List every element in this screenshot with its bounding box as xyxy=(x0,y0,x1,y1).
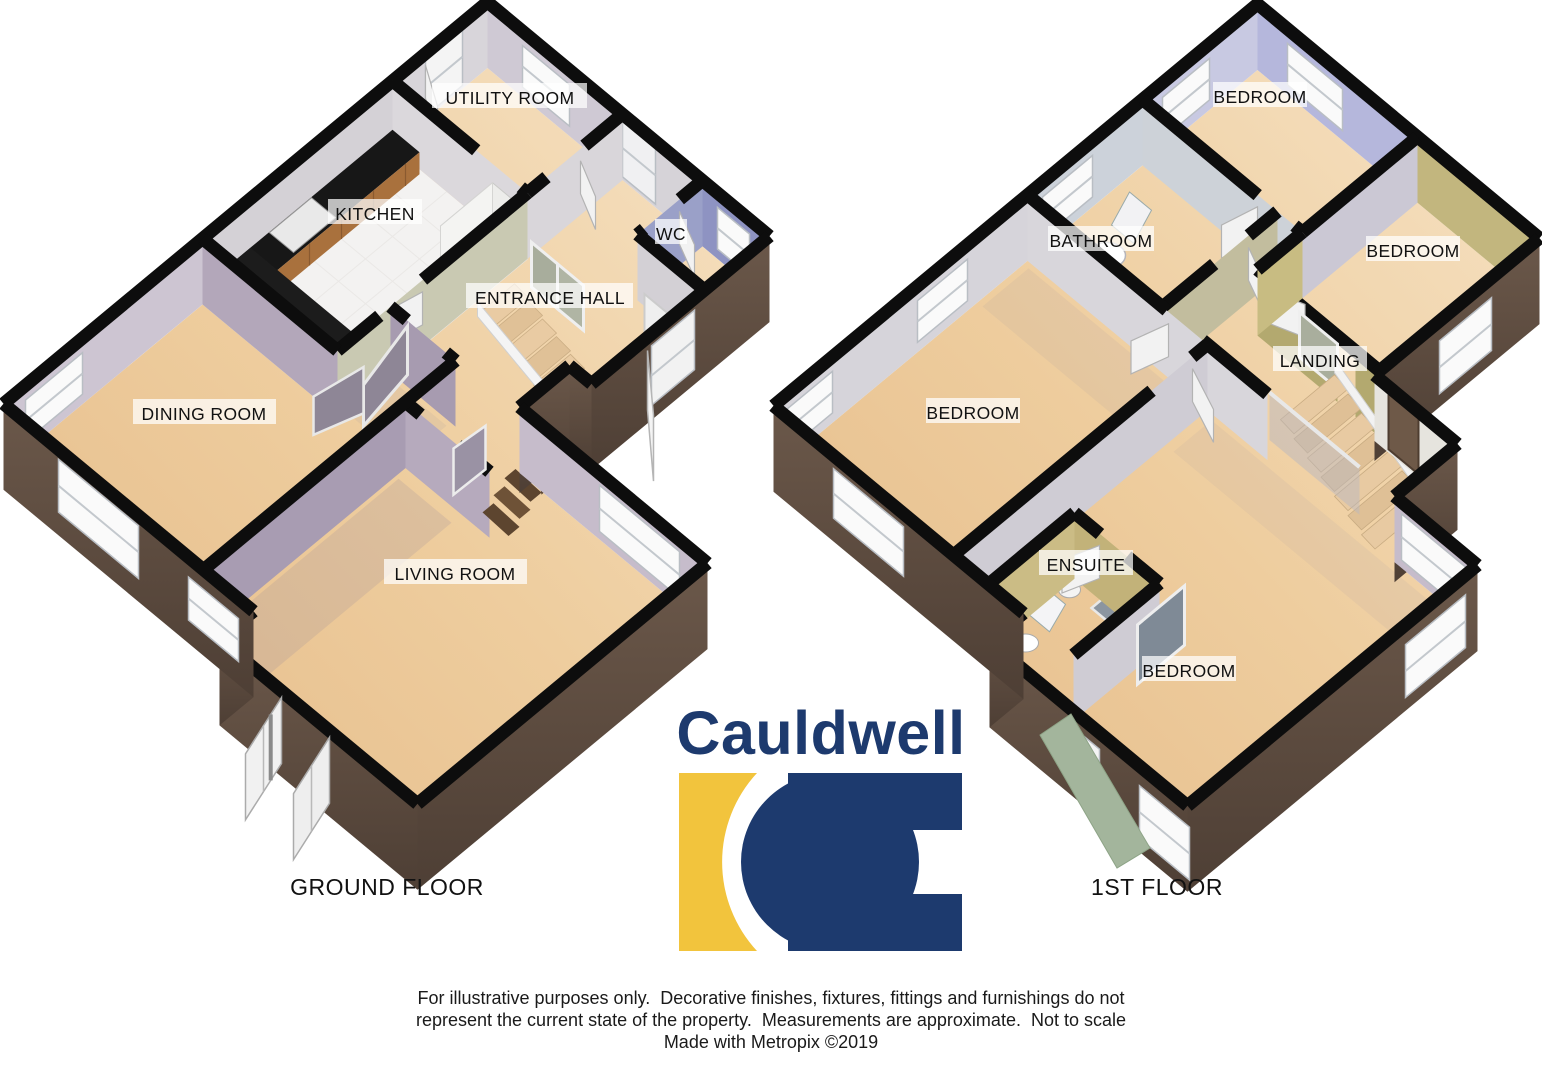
svg-text:LANDING: LANDING xyxy=(1280,351,1361,371)
svg-text:BEDROOM: BEDROOM xyxy=(1366,241,1459,261)
svg-text:Made with Metropix ©2019: Made with Metropix ©2019 xyxy=(664,1032,878,1052)
svg-text:BATHROOM: BATHROOM xyxy=(1049,231,1152,251)
svg-text:BEDROOM: BEDROOM xyxy=(1213,87,1306,107)
svg-text:LIVING ROOM: LIVING ROOM xyxy=(394,564,515,584)
svg-text:UTILITY ROOM: UTILITY ROOM xyxy=(446,88,575,108)
svg-text:KITCHEN: KITCHEN xyxy=(335,204,415,224)
svg-text:ENTRANCE HALL: ENTRANCE HALL xyxy=(475,288,625,308)
svg-text:BEDROOM: BEDROOM xyxy=(1142,661,1235,681)
svg-text:GROUND FLOOR: GROUND FLOOR xyxy=(290,874,484,900)
svg-text:Cauldwell: Cauldwell xyxy=(676,699,965,767)
svg-text:DINING ROOM: DINING ROOM xyxy=(142,404,267,424)
svg-text:BEDROOM: BEDROOM xyxy=(926,403,1019,423)
svg-text:ENSUITE: ENSUITE xyxy=(1047,555,1126,575)
svg-text:For illustrative purposes only: For illustrative purposes only. Decorati… xyxy=(417,988,1124,1008)
svg-text:WC: WC xyxy=(656,224,686,244)
svg-text:represent the current state of: represent the current state of the prope… xyxy=(416,1010,1126,1030)
svg-text:1ST FLOOR: 1ST FLOOR xyxy=(1091,874,1223,900)
